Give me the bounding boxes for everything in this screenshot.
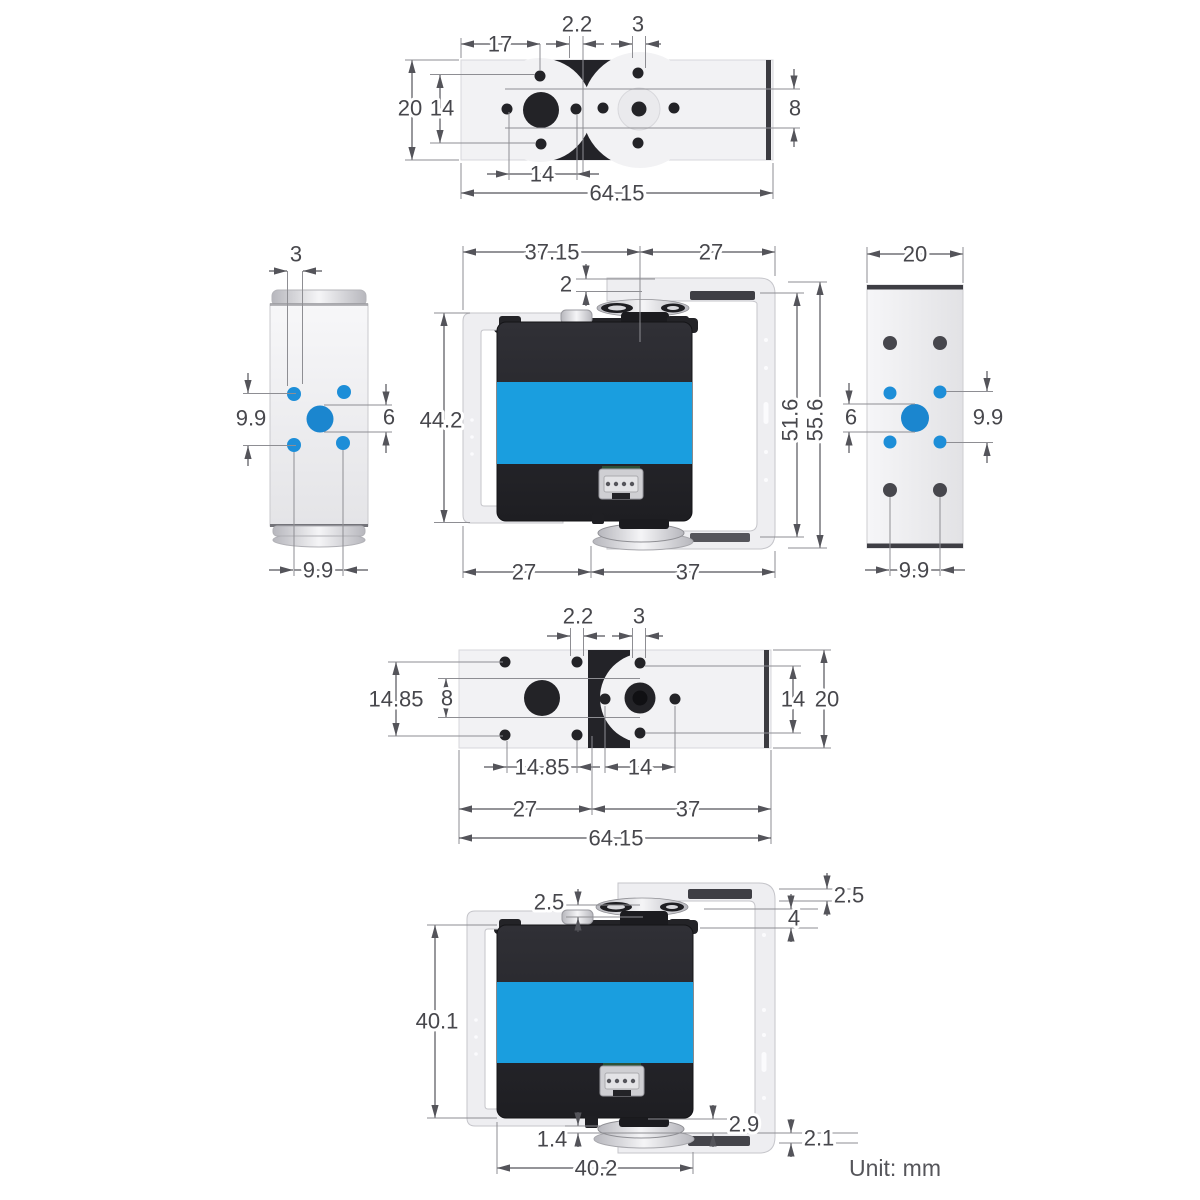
hole	[635, 658, 646, 669]
hole	[669, 103, 680, 114]
dim-label-9-9-bottom: 9.9	[303, 558, 334, 583]
dim-label-2-5-left: 2.5	[534, 890, 565, 915]
servo-side-cylinder	[270, 290, 368, 547]
bracket-hole-dot	[470, 418, 474, 422]
dim-label-14-85-bottom: 14.85	[514, 755, 569, 780]
dim-label-40-2: 40.2	[575, 1156, 618, 1181]
hole	[598, 103, 609, 114]
hole-dark	[883, 483, 897, 497]
bracket-hole-dot	[474, 1018, 478, 1022]
bearing-hole	[524, 680, 560, 716]
plate-edge-top	[867, 285, 963, 290]
connector-pin	[623, 1079, 627, 1083]
dim-label-55-6: 55.6	[803, 399, 828, 442]
dim-label-9-9-left: 9.9	[236, 406, 267, 431]
hole	[633, 138, 644, 149]
hole	[572, 730, 583, 741]
bracket-hole-dot	[470, 452, 474, 456]
hole	[633, 68, 644, 79]
horn-screw-hole-inner	[667, 306, 679, 310]
bracket-hole-dot	[762, 933, 766, 937]
bracket-slot-bottom	[690, 533, 750, 542]
servo-dimension-drawing: 17 2.2 3 20 14 8 14 64.15	[0, 0, 1200, 1200]
hole-dark	[933, 336, 947, 350]
dim-label-2-1: 2.1	[804, 1126, 835, 1151]
side-view-left: 3 9.9 6 9.9	[236, 242, 395, 583]
bracket-hole-dot	[764, 366, 768, 370]
bracket-hole-dot	[764, 478, 768, 482]
bracket-hole-dot	[470, 435, 474, 439]
dim-label-3: 3	[633, 604, 645, 629]
mount-plate-top	[461, 52, 773, 168]
bottom-cap	[273, 526, 365, 536]
bracket-hole-dot	[764, 338, 768, 342]
hole-dark	[883, 336, 897, 350]
rear-view: 2.5 2.5 4 40.1 2.9 1.4 2.1 40.2	[416, 873, 865, 1181]
dim-label-4: 4	[788, 906, 800, 931]
dim-label-3: 3	[632, 12, 644, 37]
bracket-slot-top	[688, 889, 752, 899]
dim-label-9-9-right: 9.9	[973, 405, 1004, 430]
hole	[571, 104, 582, 115]
center-hole-blue	[307, 406, 334, 433]
dim-label-8: 8	[441, 686, 453, 711]
dim-label-1-4: 1.4	[537, 1127, 568, 1152]
dim-label-14-left: 14	[430, 96, 454, 121]
servo-blue-band	[497, 982, 693, 1063]
top-seam	[270, 303, 368, 306]
hole	[502, 104, 513, 115]
dim-label-2-9: 2.9	[729, 1112, 760, 1137]
drawing-svg: 17 2.2 3 20 14 8 14 64.15	[0, 0, 1200, 1200]
mount-hole-blue	[336, 436, 350, 450]
dim-label-37: 37	[676, 797, 700, 822]
bracket-slot-hole	[764, 402, 769, 424]
dim-label-37-bottom: 37	[676, 560, 700, 585]
dim-label-2: 2	[560, 272, 572, 297]
connector-pin	[614, 482, 618, 486]
dim-label-27: 27	[513, 797, 537, 822]
bracket-hole-dot	[762, 1008, 766, 1012]
mount-hole-blue	[337, 385, 351, 399]
bottom-nub	[592, 513, 604, 524]
horn-screw-hole-inner	[666, 905, 678, 909]
hole	[535, 71, 546, 82]
hole	[635, 728, 646, 739]
hole	[536, 139, 547, 150]
bracket-hole-dot	[764, 450, 768, 454]
side-plate	[867, 285, 963, 548]
side-view-right: 20 6 9.9 9.9	[843, 242, 1003, 583]
dim-label-2-5-right: 2.5	[834, 883, 865, 908]
front-view: 37.15 27 2 44.2 51.6 55.6 27 37	[420, 240, 828, 585]
dim-label-64-15: 64.15	[589, 181, 644, 206]
hole	[600, 694, 611, 705]
connector-notch	[612, 493, 630, 499]
dim-label-20-right: 20	[815, 687, 839, 712]
dim-label-44-2: 44.2	[420, 408, 463, 433]
dim-label-27-top: 27	[699, 240, 723, 265]
dim-label-9-9-bottom: 9.9	[899, 558, 930, 583]
top-view: 17 2.2 3 20 14 8 14 64.15	[398, 12, 801, 206]
servo-rear	[497, 898, 694, 1148]
bearing-hole	[523, 92, 559, 128]
connector-pin	[606, 482, 610, 486]
connector-pin	[622, 482, 626, 486]
dim-label-2-2: 2.2	[563, 604, 594, 629]
mount-hole-blue	[884, 387, 897, 400]
dim-label-2-2: 2.2	[562, 12, 593, 37]
dim-label-64-15: 64.15	[588, 826, 643, 851]
servo-blue-band	[497, 382, 692, 464]
servo-front	[497, 300, 693, 551]
connector-notch	[613, 1090, 631, 1096]
dim-label-3: 3	[290, 242, 302, 267]
dim-label-6: 6	[845, 405, 857, 430]
connector-pin	[631, 1079, 635, 1083]
hole-dark	[933, 483, 947, 497]
mount-hole-blue	[934, 386, 947, 399]
bracket-slot-bottom	[688, 1136, 750, 1146]
dim-label-20: 20	[903, 242, 927, 267]
dim-label-8: 8	[789, 96, 801, 121]
dim-label-51-6: 51.6	[778, 399, 803, 442]
unit-label: Unit: mm	[849, 1155, 941, 1181]
plate-edge	[766, 60, 771, 160]
plate-edge-bottom	[867, 544, 963, 549]
bracket-slot-hole	[762, 1052, 767, 1072]
bottom-view: 2.2 3 14.85 8 14 20 14.85 14 27 37 64.15	[368, 604, 839, 851]
connector-pin	[630, 482, 634, 486]
mount-hole-blue	[934, 436, 947, 449]
bracket-hole-dot	[762, 1096, 766, 1100]
servo-connector	[599, 466, 643, 499]
bracket-slot-top	[690, 291, 755, 300]
bracket-hole-dot	[474, 1052, 478, 1056]
bracket-hole-dot	[474, 1035, 478, 1039]
hole	[500, 730, 511, 741]
dim-label-14-85-left: 14.85	[368, 687, 423, 712]
dim-label-14-bottom: 14	[628, 755, 652, 780]
shaft-hole	[632, 102, 647, 117]
horn-screw-hole-inner	[608, 306, 626, 311]
shaft-hole	[633, 691, 648, 706]
dim-label-27-bottom: 27	[512, 560, 536, 585]
dim-label-14-right: 14	[781, 687, 805, 712]
dim-label-17: 17	[488, 32, 512, 57]
hole	[572, 657, 583, 668]
hole	[670, 694, 681, 705]
center-hole-blue	[901, 404, 929, 432]
bracket-hole-dot	[762, 1033, 766, 1037]
connector-pin	[615, 1079, 619, 1083]
bottom-shaft	[619, 519, 669, 529]
connector-pin	[607, 1079, 611, 1083]
dim-label-37-15: 37.15	[524, 240, 579, 265]
dim-label-40-1: 40.1	[416, 1009, 459, 1034]
dim-label-6: 6	[383, 405, 395, 430]
servo-connector	[600, 1063, 644, 1096]
mount-hole-blue	[884, 436, 897, 449]
dim-label-20: 20	[398, 96, 422, 121]
dim-label-14-bottom: 14	[530, 162, 554, 187]
